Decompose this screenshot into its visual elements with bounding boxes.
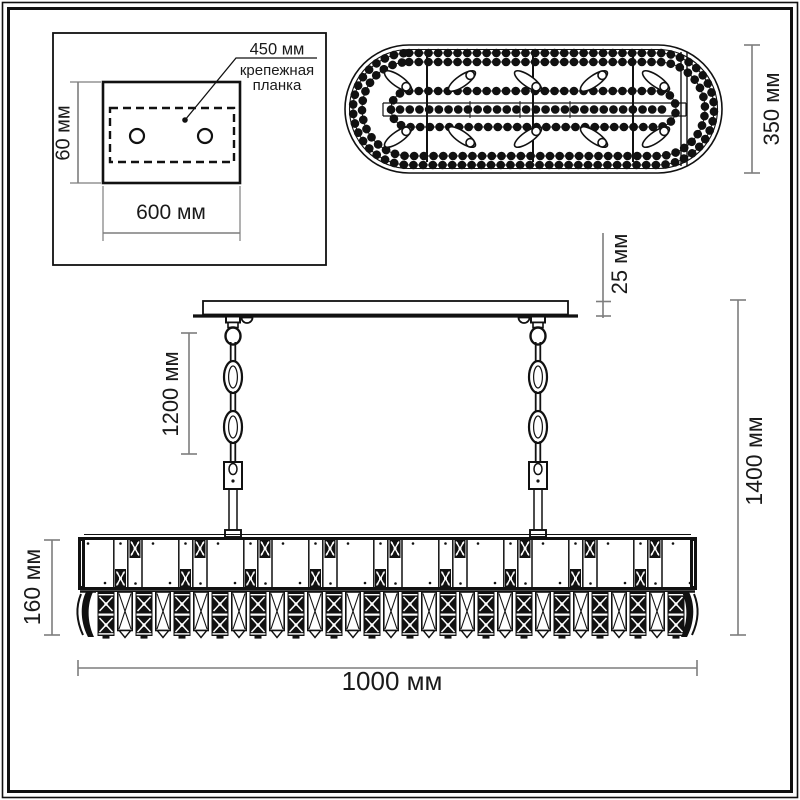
crystal-fringe [77, 592, 697, 640]
dim-total-height: 1400 мм [730, 300, 767, 635]
dim-body-width-label: 1000 мм [342, 666, 443, 696]
dim-plate-height: 60 мм [52, 82, 101, 183]
dim-fixture-depth-label: 350 мм [759, 72, 784, 145]
dim-plate-height-label: 60 мм [52, 105, 74, 160]
dim-body-height-label: 160 мм [19, 549, 45, 625]
mount-hole-left [130, 129, 144, 143]
dim-body-width: 1000 мм [78, 660, 697, 696]
dim-chain-length: 1200 мм [158, 333, 197, 454]
mounting-bracket-dashed [110, 108, 234, 162]
fixture-front-view: 25 мм 1200 мм 1400 мм 160 мм [19, 233, 767, 696]
dim-total-height-label: 1400 мм [741, 416, 767, 505]
bracket-name-line2: планка [253, 77, 302, 94]
mounting-plate-detail: 450 мм крепежная планка 60 мм 600 мм [52, 33, 326, 265]
dim-canopy-thickness: 25 мм [596, 233, 632, 318]
bracket-length-label: 450 мм [250, 40, 305, 58]
fringe-end-left [82, 592, 94, 637]
dim-fixture-depth: 350 мм [744, 45, 784, 173]
ceiling-plate [193, 301, 578, 316]
dimension-drawing: 450 мм крепежная планка 60 мм 600 мм [0, 0, 800, 800]
crystal-band [78, 530, 697, 590]
dim-plate-width-label: 600 мм [136, 201, 206, 224]
dim-canopy-thickness-label: 25 мм [607, 234, 632, 295]
dim-plate-width: 600 мм [103, 186, 240, 241]
chain-left [224, 317, 253, 538]
fixture-top-view: 350 мм [345, 45, 784, 173]
dim-chain-length-label: 1200 мм [158, 351, 183, 436]
canopy-plate-top-view [103, 82, 240, 183]
mount-hole-right [198, 129, 212, 143]
chain-right [519, 317, 548, 538]
chandelier-dimension-diagram-page: 450 мм крепежная планка 60 мм 600 мм [0, 0, 800, 800]
dim-body-height: 160 мм [19, 540, 60, 635]
